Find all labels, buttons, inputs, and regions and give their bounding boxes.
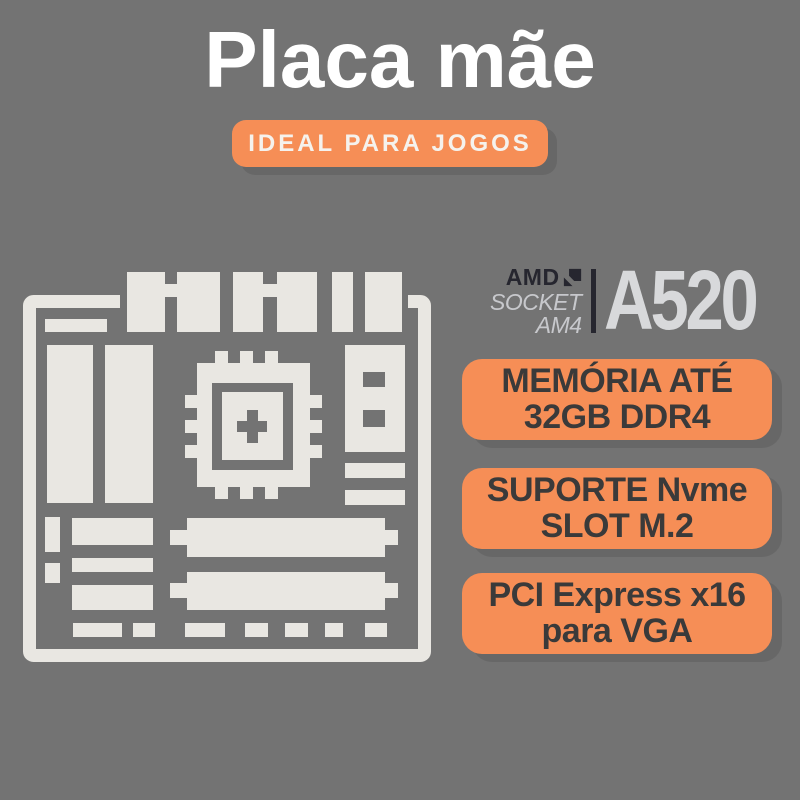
motherboard-icon — [20, 268, 440, 668]
feature-badge-pcie: PCI Express x16 para VGA — [462, 573, 772, 654]
amd-arrow-icon — [563, 268, 582, 287]
product-banner: Placa mãe IDEAL PARA JOGOS — [0, 0, 800, 800]
feature-badge-nvme: SUPORTE Nvme SLOT M.2 — [462, 468, 772, 549]
chipset-model-label: A520 — [604, 263, 756, 339]
feature-badge-memory: MEMÓRIA ATÉ 32GB DDR4 — [462, 359, 772, 440]
socket-label-line1: SOCKET — [490, 291, 582, 314]
amd-brand-label: AMD — [506, 264, 560, 291]
tagline-badge-label: IDEAL PARA JOGOS — [248, 130, 532, 158]
page-title: Placa mãe — [0, 14, 800, 106]
amd-logo: AMD — [506, 264, 582, 291]
socket-label-line2: AM4 — [536, 314, 582, 337]
feature-pcie-line1: PCI Express x16 — [488, 578, 745, 613]
tagline-badge: IDEAL PARA JOGOS — [232, 120, 548, 167]
feature-nvme-line1: SUPORTE Nvme — [487, 473, 747, 508]
chipset-lockup: AMD SOCKET AM4 A520 — [490, 263, 788, 339]
feature-memory-line2: 32GB DDR4 — [524, 400, 710, 435]
feature-memory-line1: MEMÓRIA ATÉ — [501, 364, 732, 399]
chipset-divider — [591, 269, 596, 333]
chipset-socket-block: AMD SOCKET AM4 — [490, 264, 582, 337]
feature-pcie-line2: para VGA — [542, 614, 693, 649]
feature-nvme-line2: SLOT M.2 — [541, 509, 694, 544]
